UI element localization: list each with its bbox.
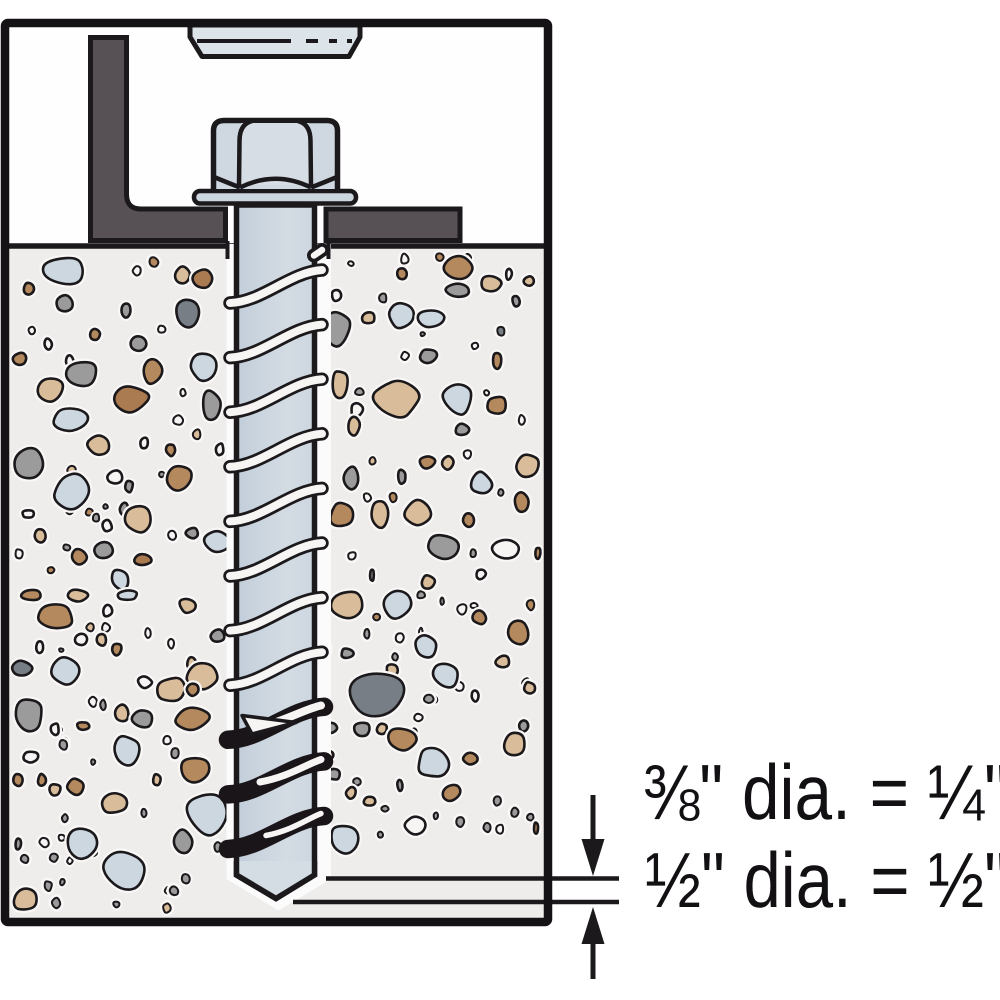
svg-text:⅜" dia. = ¼": ⅜" dia. = ¼" [643,748,1000,836]
svg-text:½" dia. = ½": ½" dia. = ½" [645,836,1000,924]
